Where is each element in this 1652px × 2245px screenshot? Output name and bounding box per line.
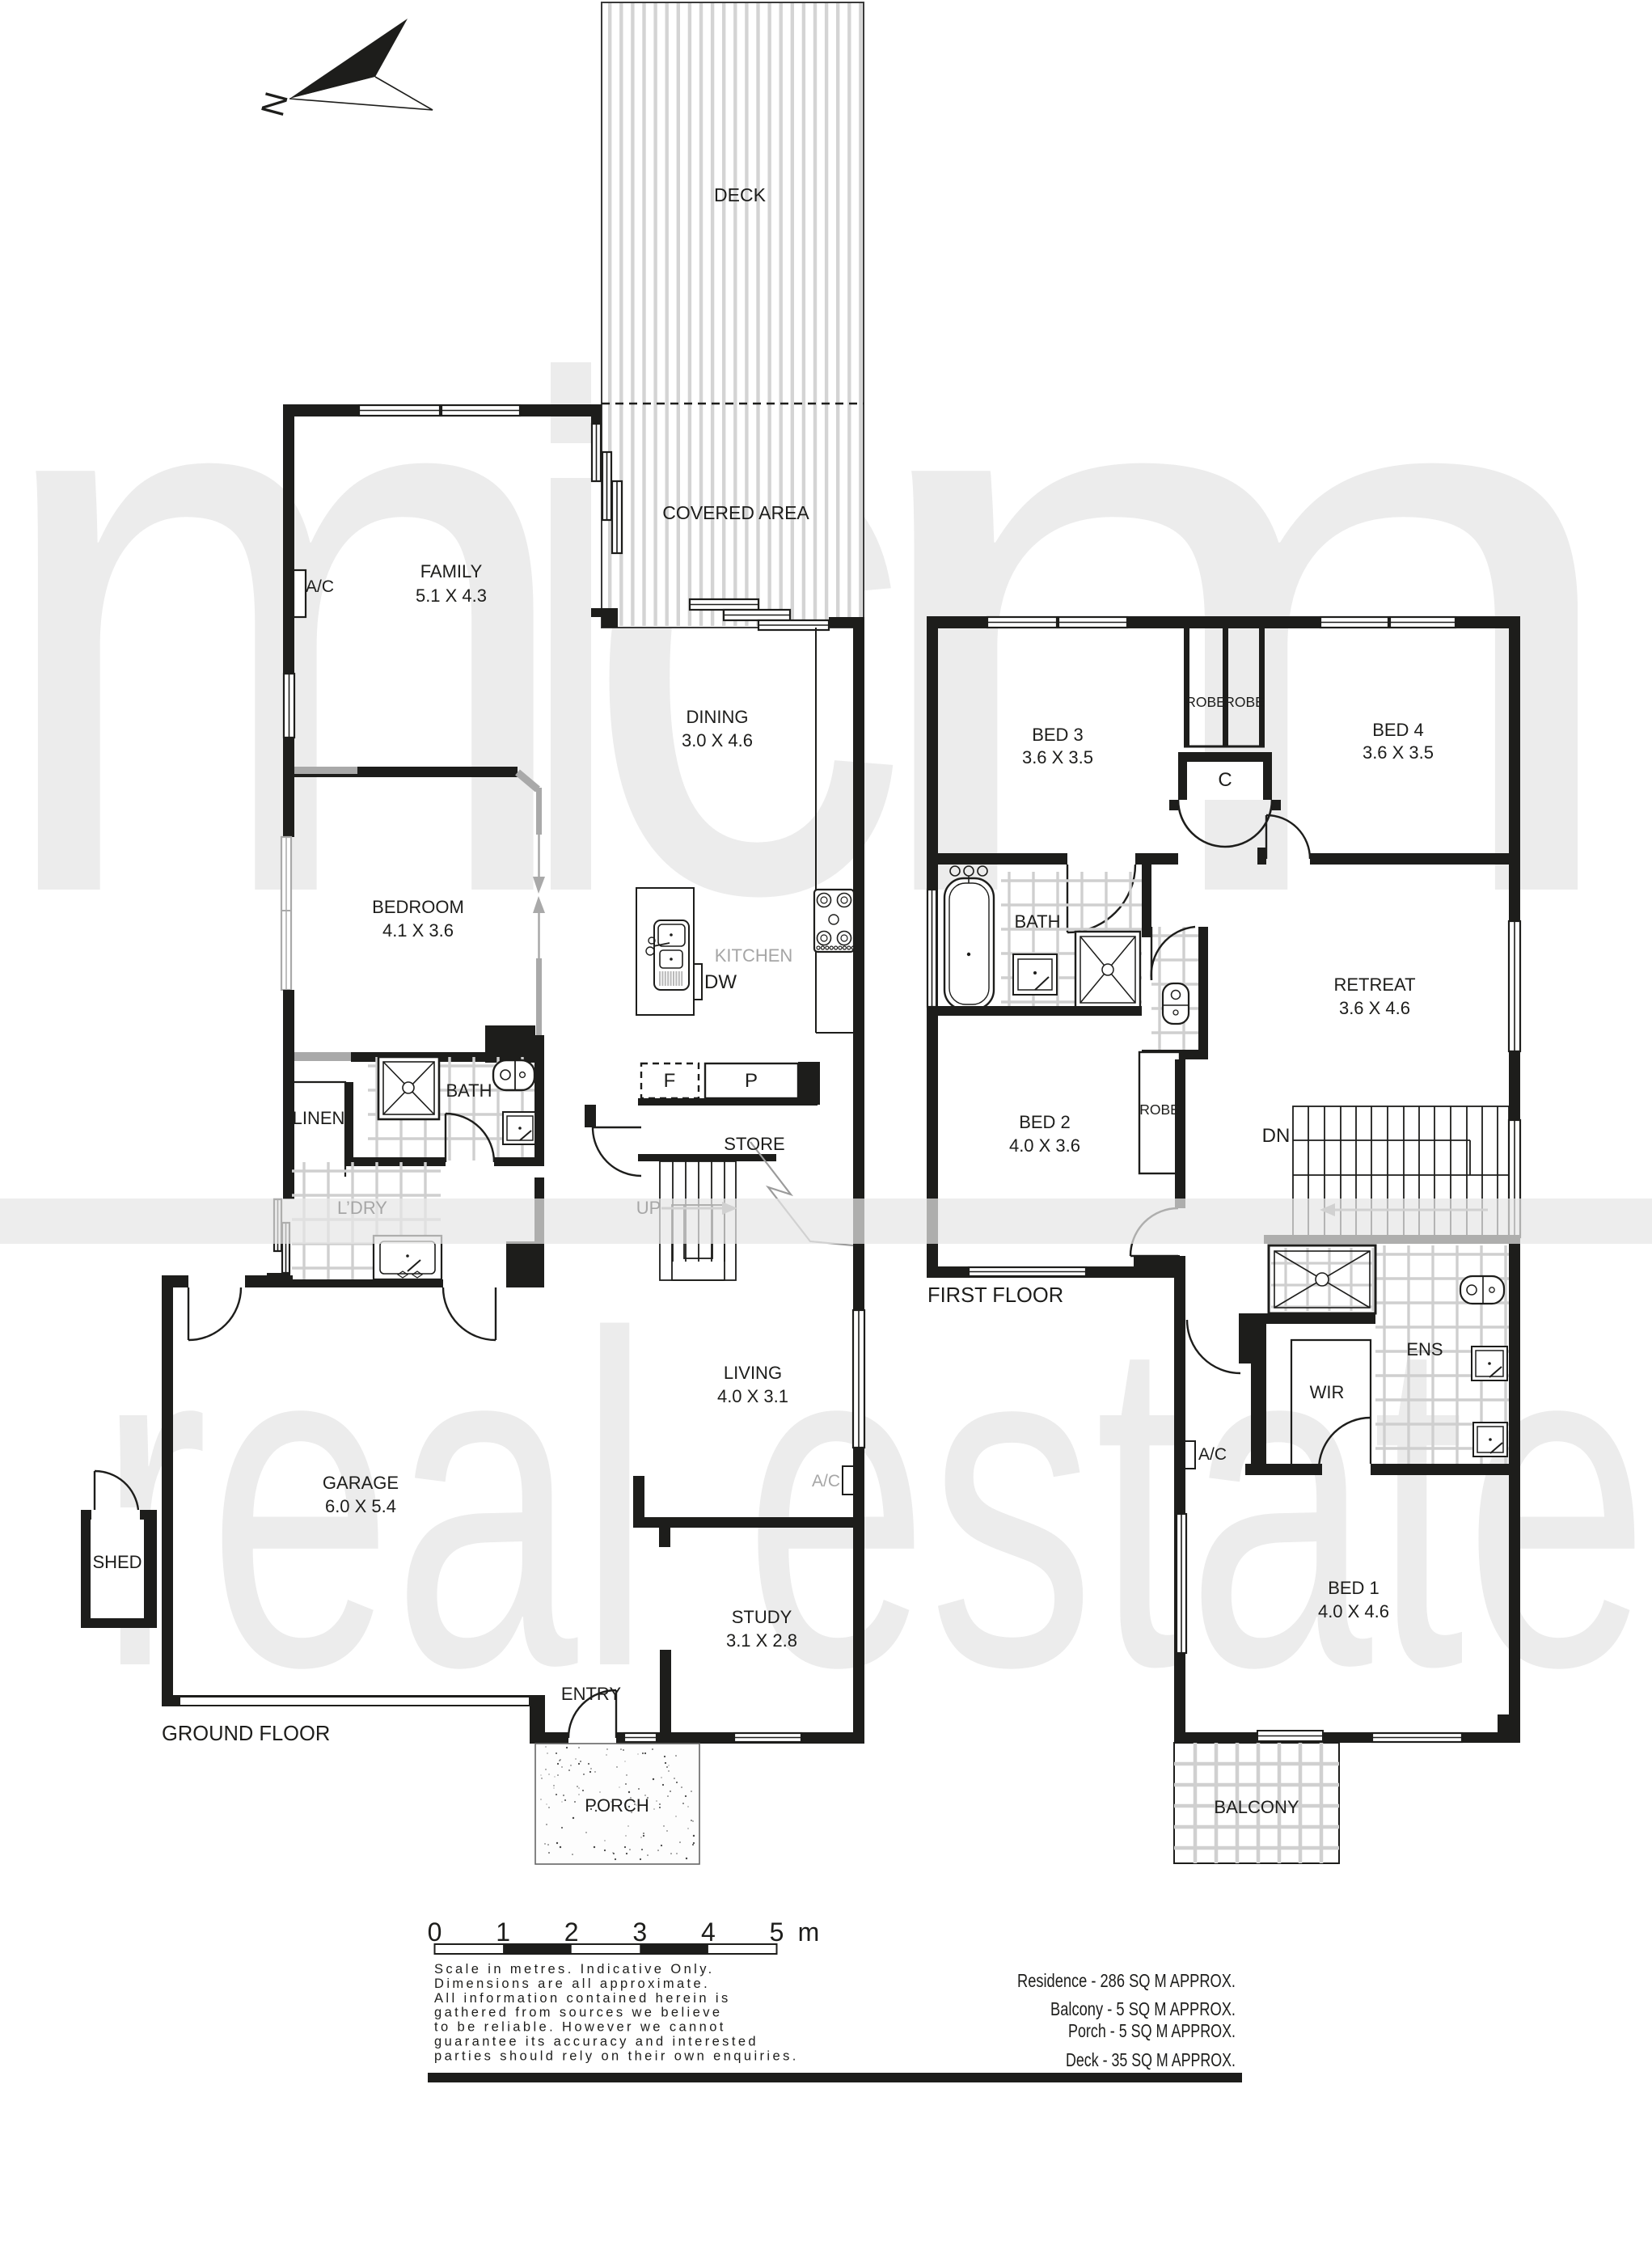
svg-text:UP: UP (636, 1198, 661, 1218)
svg-text:BATH: BATH (1014, 911, 1060, 932)
svg-text:DN: DN (1262, 1125, 1291, 1147)
svg-text:BATH: BATH (446, 1080, 492, 1101)
svg-text:FAMILY: FAMILY (420, 561, 483, 581)
svg-text:DECK: DECK (714, 184, 767, 205)
svg-text:m: m (798, 1917, 820, 1947)
svg-text:1: 1 (496, 1917, 510, 1947)
svg-text:3.0 X 4.6: 3.0 X 4.6 (682, 730, 753, 750)
svg-text:Deck - 35 SQ M APPROX.: Deck - 35 SQ M APPROX. (1066, 2049, 1236, 2070)
svg-text:ROBE: ROBE (1139, 1101, 1180, 1118)
svg-text:4.0 X 3.6: 4.0 X 3.6 (1009, 1135, 1080, 1156)
svg-text:PORCH: PORCH (585, 1795, 649, 1816)
svg-text:Balcony - 5 SQ M APPROX.: Balcony - 5 SQ M APPROX. (1050, 1998, 1236, 2019)
svg-text:DINING: DINING (687, 707, 749, 727)
svg-text:A/C: A/C (306, 577, 334, 596)
svg-text:BEDROOM: BEDROOM (372, 897, 464, 917)
svg-text:BED 4: BED 4 (1372, 720, 1424, 740)
svg-text:KITCHEN: KITCHEN (715, 945, 793, 966)
svg-text:A/C: A/C (812, 1472, 840, 1490)
svg-text:All information contained here: All information contained herein is (434, 1991, 731, 2006)
svg-text:3.6 X 3.5: 3.6 X 3.5 (1363, 742, 1434, 763)
svg-text:gathered from sources we belie: gathered from sources we believe (434, 2006, 722, 2020)
svg-text:BED 3: BED 3 (1032, 725, 1084, 745)
svg-text:F: F (664, 1070, 676, 1092)
svg-text:RETREAT: RETREAT (1333, 975, 1415, 995)
svg-text:STUDY: STUDY (732, 1607, 792, 1627)
svg-text:P: P (745, 1070, 758, 1092)
svg-text:GROUND FLOOR: GROUND FLOOR (162, 1723, 330, 1745)
svg-text:5: 5 (770, 1917, 784, 1947)
svg-text:ROBE: ROBE (1185, 694, 1226, 710)
svg-text:A/C: A/C (1198, 1445, 1227, 1464)
svg-text:Dimensions are all approximate: Dimensions are all approximate. (434, 1977, 710, 1991)
svg-text:BED 2: BED 2 (1019, 1112, 1071, 1132)
svg-text:3: 3 (632, 1917, 647, 1947)
svg-text:ROBE: ROBE (1224, 694, 1265, 710)
svg-text:Porch - 5 SQ M APPROX.: Porch - 5 SQ M APPROX. (1068, 2020, 1236, 2041)
svg-text:parties should rely on their o: parties should rely on their own enquiri… (434, 2048, 799, 2063)
svg-text:L’DRY: L’DRY (337, 1198, 387, 1218)
svg-text:4.1 X 3.6: 4.1 X 3.6 (382, 920, 454, 941)
svg-text:FIRST FLOOR: FIRST FLOOR (927, 1284, 1063, 1307)
svg-text:0: 0 (428, 1917, 442, 1947)
svg-text:4.0 X 4.6: 4.0 X 4.6 (1318, 1601, 1389, 1621)
svg-text:LINEN: LINEN (293, 1108, 345, 1128)
svg-text:GARAGE: GARAGE (323, 1473, 399, 1493)
svg-text:Residence - 286 SQ M APPROX.: Residence - 286 SQ M APPROX. (1017, 1970, 1236, 1991)
svg-text:4: 4 (701, 1917, 716, 1947)
svg-text:C: C (1218, 769, 1232, 791)
svg-text:SHED: SHED (92, 1552, 142, 1572)
svg-text:ENS: ENS (1406, 1339, 1443, 1359)
svg-text:6.0 X 5.4: 6.0 X 5.4 (325, 1496, 396, 1516)
svg-text:DW: DW (704, 971, 737, 993)
svg-text:LIVING: LIVING (724, 1363, 782, 1383)
svg-text:3.6 X 3.5: 3.6 X 3.5 (1022, 747, 1093, 767)
svg-text:ENTRY: ENTRY (561, 1684, 621, 1704)
svg-text:3.6 X 4.6: 3.6 X 4.6 (1339, 998, 1410, 1018)
svg-text:4.0 X 3.1: 4.0 X 3.1 (717, 1386, 788, 1406)
svg-text:BALCONY: BALCONY (1214, 1797, 1299, 1817)
svg-text:STORE: STORE (724, 1134, 784, 1154)
svg-text:WIR: WIR (1310, 1382, 1345, 1402)
svg-text:3.1 X 2.8: 3.1 X 2.8 (726, 1630, 797, 1651)
svg-text:guarantee its accuracy and int: guarantee its accuracy and interested (434, 2035, 758, 2049)
svg-text:BED 1: BED 1 (1328, 1578, 1379, 1598)
svg-text:Scale in metres. Indicative On: Scale in metres. Indicative Only. (434, 1962, 715, 1977)
svg-text:2: 2 (564, 1917, 579, 1947)
svg-text:5.1 X 4.3: 5.1 X 4.3 (416, 586, 487, 606)
svg-text:to be reliable. However we can: to be reliable. However we cannot (434, 2020, 726, 2035)
svg-text:COVERED AREA: COVERED AREA (662, 502, 809, 523)
